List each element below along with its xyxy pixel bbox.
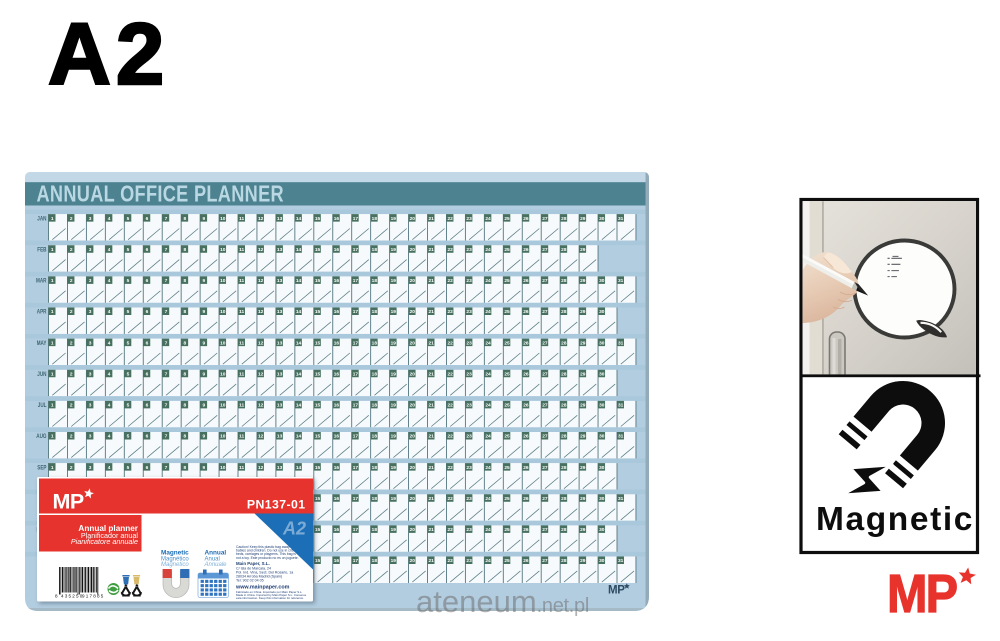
- svg-text:MP: MP: [608, 584, 625, 596]
- svg-text:JUL: JUL: [38, 402, 47, 409]
- svg-text:AUG: AUG: [36, 433, 46, 440]
- svg-text:8: 8: [55, 593, 58, 598]
- svg-text:JAN: JAN: [37, 215, 46, 222]
- svg-text:Tel: 902 02 04 05: Tel: 902 02 04 05: [236, 578, 264, 582]
- svg-text:JUN: JUN: [37, 371, 46, 378]
- svg-text:Annual: Annual: [204, 549, 226, 556]
- svg-text:APR: APR: [37, 309, 47, 316]
- svg-text:ANNUAL OFFICE PLANNER: ANNUAL OFFICE PLANNER: [37, 181, 284, 207]
- svg-text:Magnetic: Magnetic: [816, 501, 974, 538]
- svg-text:Magnetico: Magnetico: [161, 562, 189, 568]
- svg-text:Pianificatore annuale: Pianificatore annuale: [70, 537, 137, 546]
- svg-text:MP: MP: [52, 489, 83, 513]
- svg-text:MAR: MAR: [36, 278, 46, 285]
- svg-text:Main Paper, S.L.: Main Paper, S.L.: [236, 561, 270, 566]
- svg-text:PN137-01: PN137-01: [246, 497, 305, 511]
- svg-text:435250: 435250: [61, 593, 84, 598]
- svg-text:Annuale: Annuale: [203, 562, 227, 568]
- svg-text:esta informacion. Keep this in: esta informacion. Keep this information …: [236, 595, 304, 599]
- svg-text:A2: A2: [281, 518, 305, 538]
- svg-text:917885: 917885: [82, 593, 105, 598]
- svg-text:Magnetic: Magnetic: [161, 549, 189, 556]
- svg-text:FEB: FEB: [37, 246, 46, 253]
- svg-text:SEP: SEP: [37, 464, 46, 471]
- svg-text:not a toy. Este producto no es: not a toy. Este producto no es un juguet…: [236, 555, 299, 559]
- svg-text:MAY: MAY: [37, 340, 47, 347]
